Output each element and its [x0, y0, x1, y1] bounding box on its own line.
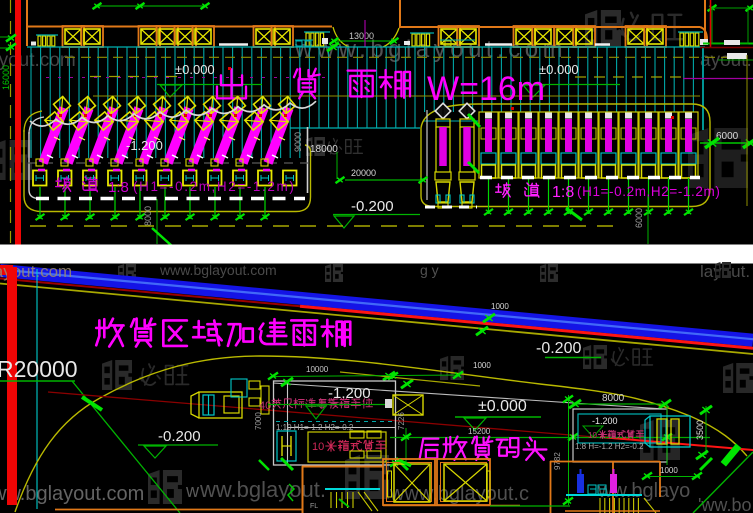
svg-text:13000: 13000 [349, 31, 374, 41]
svg-text:6000: 6000 [634, 208, 644, 228]
svg-text:1000: 1000 [473, 361, 491, 370]
svg-text:7000: 7000 [254, 412, 263, 430]
svg-text:1000: 1000 [660, 466, 678, 475]
svg-text:1:8: 1:8 [552, 184, 574, 201]
svg-text:10: 10 [312, 441, 324, 453]
svg-text:15200: 15200 [468, 427, 491, 436]
svg-text:±0.000: ±0.000 [478, 398, 527, 415]
svg-text:40: 40 [259, 400, 271, 412]
svg-text:(H1=-0.2m,H2=-1.2m): (H1=-0.2m,H2=-1.2m) [133, 179, 295, 194]
svg-text:-1.200: -1.200 [592, 416, 618, 426]
svg-text:16000: 16000 [1, 65, 11, 90]
svg-text:10000: 10000 [306, 365, 329, 374]
svg-text:±0.000: ±0.000 [175, 62, 215, 77]
svg-text:1:8 H=-1.2 H2=-0.2: 1:8 H=-1.2 H2=-0.2 [575, 442, 644, 451]
svg-text:10: 10 [588, 431, 597, 440]
svg-text:8000: 8000 [143, 206, 153, 226]
svg-text:6000: 6000 [716, 131, 739, 142]
svg-text:g y: g y [420, 262, 439, 278]
svg-text:9000: 9000 [293, 132, 303, 152]
svg-text:1:8: 1:8 [108, 179, 129, 196]
svg-text:-1.200: -1.200 [126, 138, 163, 153]
svg-text:1000: 1000 [491, 302, 509, 311]
svg-text:7226: 7226 [397, 412, 406, 430]
svg-text:W=16m: W=16m [427, 70, 545, 108]
svg-text:20000: 20000 [351, 168, 376, 178]
svg-text:ayout.com: ayout.com [0, 50, 76, 71]
svg-text:3500: 3500 [695, 420, 705, 440]
svg-text:FL: FL [310, 503, 318, 510]
svg-text:www.bglayout.com: www.bglayout.com [159, 262, 277, 278]
svg-text:w: w [185, 481, 200, 501]
svg-text:-0.200: -0.200 [536, 340, 581, 357]
svg-text:18000: 18000 [310, 144, 338, 155]
svg-text:'ww.bo: 'ww.bo [698, 495, 751, 513]
svg-text:(H1=-0.2m,H2=-1.2m): (H1=-0.2m,H2=-1.2m) [577, 184, 720, 199]
svg-text:8000: 8000 [602, 393, 625, 404]
svg-text:-0.200: -0.200 [351, 198, 394, 215]
svg-text:-0.200: -0.200 [158, 428, 201, 445]
svg-text:R20000: R20000 [0, 356, 78, 382]
svg-text:ww.bglayout.: ww.bglayout. [199, 477, 326, 502]
